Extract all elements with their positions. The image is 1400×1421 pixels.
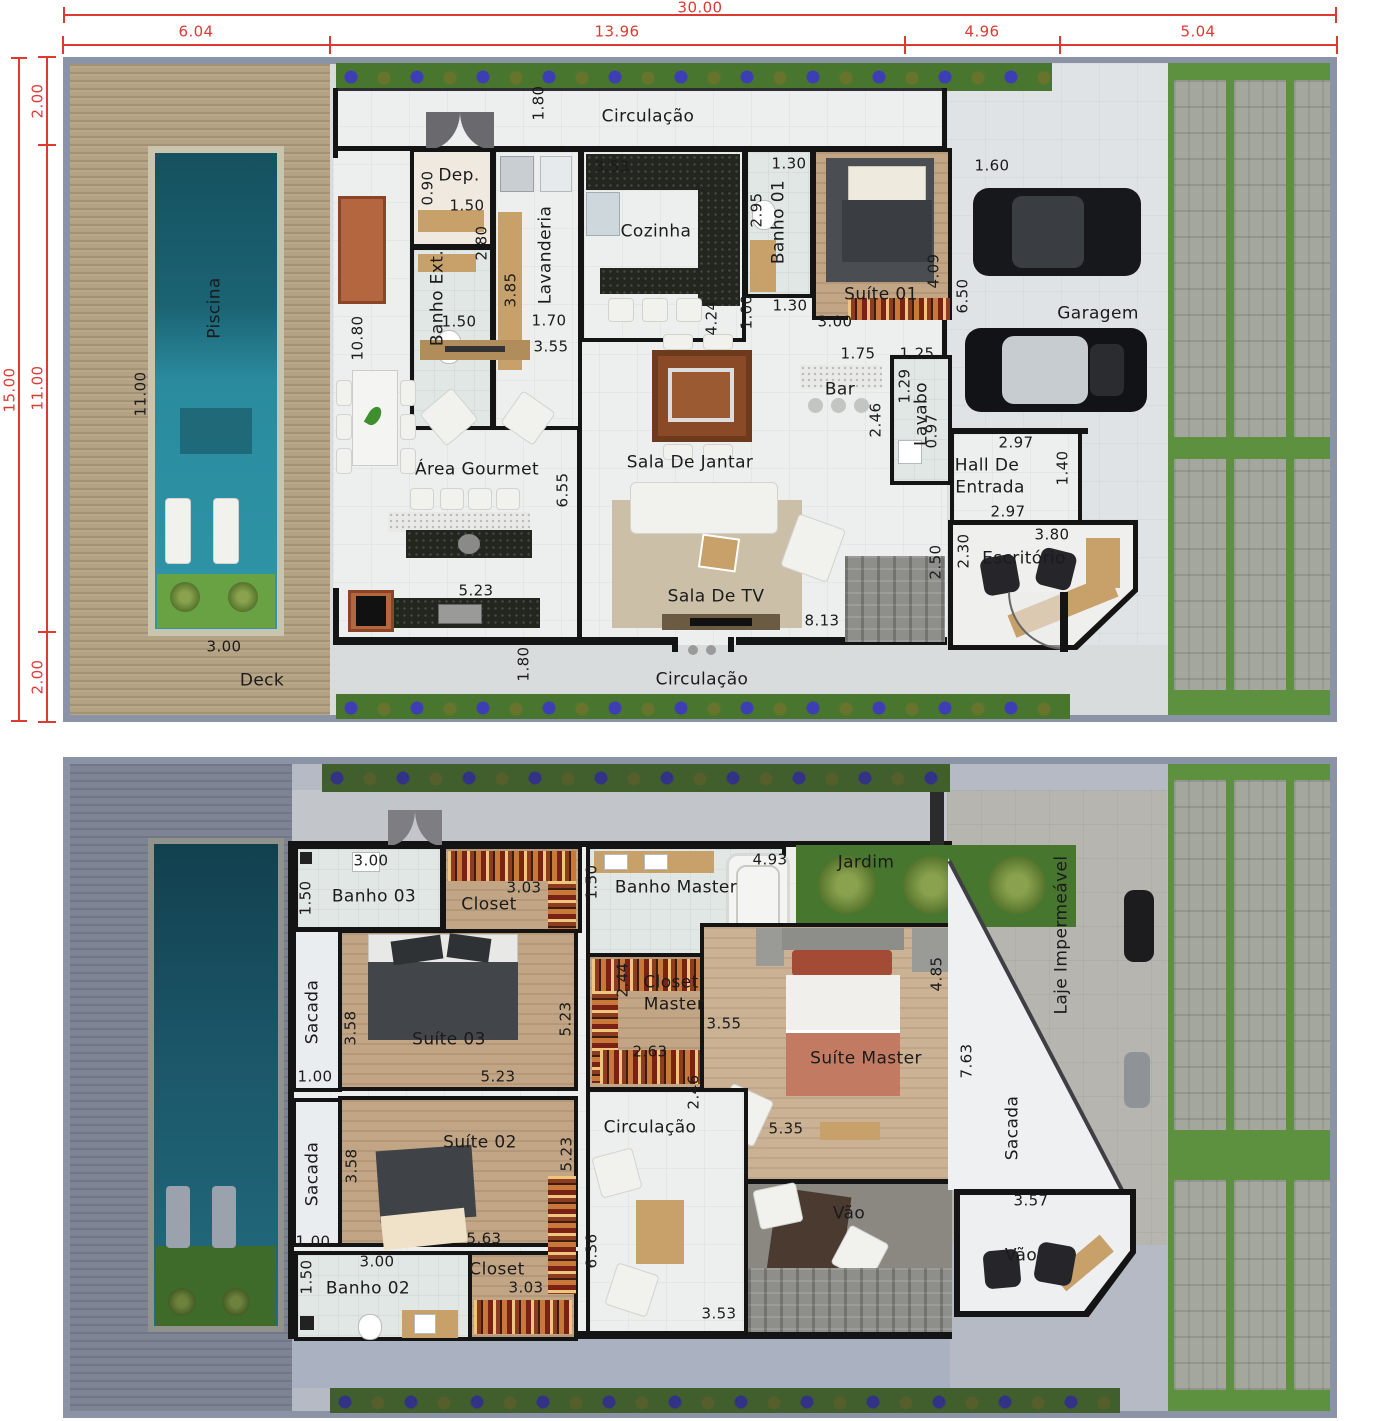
- washer: [500, 156, 534, 192]
- room-label: Banho Master: [615, 880, 737, 897]
- room-label: Jardim: [838, 855, 895, 872]
- measure-label: 2.30: [957, 534, 972, 569]
- gourmet-chair: [336, 380, 352, 406]
- rear-hedge-upper: [330, 1388, 1120, 1413]
- dimension-label: 4.96: [965, 25, 1000, 40]
- dimension-label: 5.04: [1181, 25, 1216, 40]
- paver-strip: [1174, 80, 1226, 690]
- measure-label: 3.03: [507, 881, 542, 896]
- dimension-label: 2.00: [31, 660, 46, 695]
- office-chair: [1033, 1241, 1077, 1287]
- measure-label: 5.23: [560, 1137, 575, 1172]
- sink: [414, 1314, 436, 1334]
- car-silver-roof: [1002, 336, 1088, 404]
- laundry-sink: [540, 156, 572, 192]
- dimension-label: 30.00: [678, 1, 723, 16]
- dining-table-runner: [668, 368, 734, 422]
- dim-tick: [1059, 36, 1061, 54]
- measure-label: 6.55: [556, 473, 571, 508]
- room-label: Bar: [825, 382, 855, 399]
- measure-label: 3.80: [1035, 528, 1070, 543]
- gourmet-chair: [400, 448, 416, 474]
- measure-label: 1.00: [296, 1235, 331, 1250]
- master-pillows: [792, 950, 892, 976]
- stool: [642, 298, 668, 322]
- room-label: Closet: [461, 897, 516, 914]
- suite01-blanket: [842, 200, 932, 262]
- dimension-label: 15.00: [3, 368, 18, 413]
- measure-label: 2.95: [750, 193, 765, 228]
- measure-label: 1.60: [975, 159, 1010, 174]
- measure-label: 11.00: [134, 372, 149, 417]
- measure-label: 5.23: [559, 1002, 574, 1037]
- room-label: Master: [644, 997, 704, 1014]
- dim-tick: [904, 36, 906, 54]
- dim-tick: [38, 721, 56, 723]
- master-bed-head: [782, 928, 904, 950]
- measure-label: 4.85: [930, 957, 945, 992]
- door-jamb: [728, 637, 734, 652]
- stool: [676, 298, 702, 322]
- paver-strip: [1294, 780, 1330, 1130]
- gourmet-cabinet: [338, 196, 386, 304]
- measure-label: 2.46: [687, 1075, 702, 1110]
- tv: [690, 618, 752, 626]
- measure-label: 0.90: [421, 171, 436, 206]
- plant: [170, 582, 200, 612]
- cooktop: [438, 604, 482, 624]
- measure-label: 1.40: [1056, 451, 1071, 486]
- measure-label: 1.70: [532, 314, 567, 329]
- measure-label: 1.29: [898, 369, 913, 404]
- measure-label: 5.23: [459, 584, 494, 599]
- room-label: Circulação: [656, 672, 749, 689]
- stool: [440, 488, 464, 510]
- floor-plan-page: 30.006.0413.964.965.0415.002.0011.002.00…: [0, 0, 1400, 1421]
- room-label: Suíte 02: [443, 1135, 517, 1152]
- paver-strip: [1294, 1180, 1330, 1390]
- measure-label: 1.80: [517, 647, 532, 682]
- room-label: Área Gourmet: [415, 462, 539, 479]
- room-label: Garagem: [1057, 306, 1139, 323]
- suite03-bed-head: [368, 934, 518, 964]
- measure-label: 3.55: [707, 1017, 742, 1032]
- dim-tick: [11, 720, 27, 722]
- gourmet-sideboard-top: [445, 346, 505, 352]
- measure-label: 2.97: [991, 505, 1026, 520]
- car-silver-window: [1090, 344, 1124, 396]
- front-hedge-upper: [322, 764, 950, 792]
- grill: [458, 534, 480, 554]
- measure-label: 10.80: [351, 316, 366, 361]
- dim-tick: [38, 56, 56, 58]
- room-label: Banho 03: [332, 889, 416, 906]
- measure-label: 3.53: [595, 160, 630, 175]
- wardrobe: [474, 1300, 572, 1334]
- measure-label: 3.53: [702, 1307, 737, 1322]
- measure-label: 7.63: [960, 1044, 975, 1079]
- measure-label: 3.00: [207, 640, 242, 655]
- upper-sidewalk-bottom: [292, 1335, 950, 1388]
- wardrobe: [448, 851, 576, 881]
- room-label: Banho 01: [771, 180, 788, 264]
- pool-bench: [180, 408, 252, 454]
- measure-label: 2.46: [869, 403, 884, 438]
- room-label: Sacada: [1005, 1096, 1022, 1161]
- measure-label: 1.80: [532, 86, 547, 121]
- measure-label: 1.75: [841, 347, 876, 362]
- measure-label: 6.50: [956, 279, 971, 314]
- hall-chair: [636, 1200, 684, 1264]
- stool: [608, 298, 634, 322]
- measure-label: 1.50: [442, 315, 477, 330]
- measure-label: 5.35: [769, 1122, 804, 1137]
- room-label: Sala De Jantar: [627, 455, 754, 472]
- car-dark-cabin: [1012, 196, 1084, 268]
- measure-label: 5.63: [467, 1232, 502, 1247]
- top-segment-dim-line: [63, 44, 1337, 46]
- fridge: [586, 192, 620, 236]
- room-label: Vão: [1005, 1248, 1037, 1265]
- room-label: Sacada: [305, 1142, 322, 1207]
- measure-label: 4.09: [927, 254, 942, 289]
- dimension-label: 6.04: [179, 25, 214, 40]
- room-label: Vão: [833, 1206, 865, 1223]
- jardim-plant: [988, 856, 1046, 914]
- dim-tick: [62, 36, 64, 54]
- room-label: Closet: [643, 975, 698, 992]
- paver-strip: [1174, 780, 1226, 1130]
- measure-label: 1.50: [450, 199, 485, 214]
- measure-label: 3.00: [818, 315, 853, 330]
- room-label: Sacada: [305, 980, 322, 1045]
- sink: [604, 854, 628, 870]
- bar-stool: [831, 398, 846, 413]
- plant: [222, 1288, 250, 1316]
- measure-label: 3.58: [345, 1149, 360, 1184]
- measure-label: 3.58: [344, 1011, 359, 1046]
- measure-label: 1.00: [740, 295, 755, 330]
- measure-label: 0.97: [925, 414, 940, 449]
- gourmet-oven-door: [356, 596, 386, 626]
- wall: [333, 588, 339, 640]
- shower-head: [300, 852, 312, 864]
- measure-label: 2.44: [616, 963, 631, 998]
- dining-chair: [663, 334, 693, 350]
- suite03-blanket: [368, 962, 518, 1040]
- measure-label: 2.50: [929, 545, 944, 580]
- dimension-label: 13.96: [595, 25, 640, 40]
- dimension-label: 11.00: [31, 366, 46, 411]
- room-label: Laje Impermeável: [1054, 855, 1071, 1014]
- room-label: Circulação: [604, 1120, 697, 1137]
- measure-label: 3.00: [354, 854, 389, 869]
- rear-hedge: [336, 694, 1070, 719]
- paver-strip: [1234, 780, 1286, 1130]
- room-label: Banho Ext.: [430, 250, 447, 346]
- measure-label: 2.63: [633, 1045, 668, 1060]
- front-door-leaf: [1060, 592, 1068, 652]
- gourmet-chair: [336, 448, 352, 474]
- measure-label: 1.50: [300, 1260, 315, 1295]
- sofa: [630, 482, 778, 534]
- dim-tick: [38, 631, 56, 633]
- measure-label: 3.85: [504, 273, 519, 308]
- room-label: Dep.: [438, 168, 479, 185]
- room-label: Hall De: [955, 458, 1019, 475]
- dining-chair: [703, 334, 733, 350]
- bar-stool: [808, 398, 823, 413]
- measure-label: 4.24: [705, 301, 720, 336]
- vao-stone-wall: [748, 1268, 952, 1332]
- door-dot: [688, 645, 698, 655]
- pool-lounger: [165, 498, 191, 564]
- master-console: [820, 1122, 880, 1140]
- measure-label: 1.50: [585, 865, 600, 900]
- measure-label: 8.13: [805, 614, 840, 629]
- measure-label: 1.30: [772, 157, 807, 172]
- paver-strip: [1234, 1180, 1286, 1390]
- room-label: Piscina: [207, 277, 224, 339]
- shower-head: [300, 1316, 314, 1330]
- dim-tick: [38, 144, 56, 146]
- measure-label: 1.25: [900, 347, 935, 362]
- nightstand: [756, 928, 784, 966]
- room-label: Entrada: [955, 480, 1025, 497]
- stool: [410, 488, 434, 510]
- measure-label: 3.00: [360, 1255, 395, 1270]
- wall: [333, 637, 678, 645]
- plant: [168, 1288, 196, 1316]
- wall: [333, 88, 338, 158]
- measure-label: 3.57: [1014, 1194, 1049, 1209]
- room-label: Closet: [469, 1262, 524, 1279]
- room-label: Suíte 01: [844, 287, 918, 304]
- door-dot: [706, 645, 716, 655]
- measure-label: 2.80: [475, 226, 490, 261]
- wardrobe: [548, 881, 576, 929]
- dim-tick: [63, 7, 65, 23]
- room-label: Lavanderia: [538, 206, 555, 305]
- measure-label: 1.30: [773, 299, 808, 314]
- plant: [228, 582, 258, 612]
- measure-label: 3.03: [509, 1281, 544, 1296]
- dimension-label: 2.00: [31, 84, 46, 119]
- room-label: Suíte Master: [810, 1051, 922, 1068]
- room-label: Sala De TV: [668, 589, 765, 606]
- sink: [644, 854, 668, 870]
- dim-tick: [1335, 7, 1337, 23]
- room-label: Cozinha: [621, 224, 692, 241]
- measure-label: 1.50: [299, 881, 314, 916]
- gourmet-chair: [400, 414, 416, 440]
- wardrobe: [548, 1176, 576, 1294]
- front-hedge: [336, 63, 1052, 91]
- toilet: [358, 1314, 382, 1340]
- paver-strip: [1234, 80, 1286, 690]
- laje-ac-unit: [1124, 1052, 1150, 1108]
- measure-label: 5.23: [481, 1070, 516, 1085]
- stool: [468, 488, 492, 510]
- measure-label: 4.93: [753, 853, 788, 868]
- master-bed: [786, 975, 900, 1033]
- pool-lounger: [213, 498, 239, 564]
- gourmet-chair: [400, 380, 416, 406]
- island-counter: [388, 512, 530, 532]
- room-label: Escritório: [982, 551, 1066, 568]
- dim-tick: [11, 57, 27, 59]
- room-label: Circulação: [602, 109, 695, 126]
- room-label: Deck: [240, 673, 284, 690]
- room-label: Banho 02: [326, 1281, 410, 1298]
- paver-strip: [1294, 80, 1330, 690]
- room-label: Suíte 03: [412, 1032, 486, 1049]
- measure-label: 6.36: [585, 1234, 600, 1269]
- door-jamb: [672, 637, 678, 652]
- measure-label: 3.55: [534, 340, 569, 355]
- coffee-table: [698, 534, 740, 573]
- dim-tick: [1336, 36, 1338, 54]
- upper-side-door: [930, 792, 944, 846]
- lawn-band: [1168, 437, 1330, 459]
- pool-lounger-below: [212, 1186, 236, 1248]
- measure-label: 2.97: [999, 436, 1034, 451]
- dim-tick: [329, 36, 331, 54]
- pool-lounger-below: [166, 1186, 190, 1248]
- wall: [333, 88, 947, 91]
- measure-label: 1.00: [298, 1070, 333, 1085]
- paver-strip: [1174, 1180, 1226, 1390]
- gourmet-chair: [336, 414, 352, 440]
- kitchen-island: [600, 268, 718, 294]
- laje-ac-unit: [1124, 890, 1154, 962]
- stool: [496, 488, 520, 510]
